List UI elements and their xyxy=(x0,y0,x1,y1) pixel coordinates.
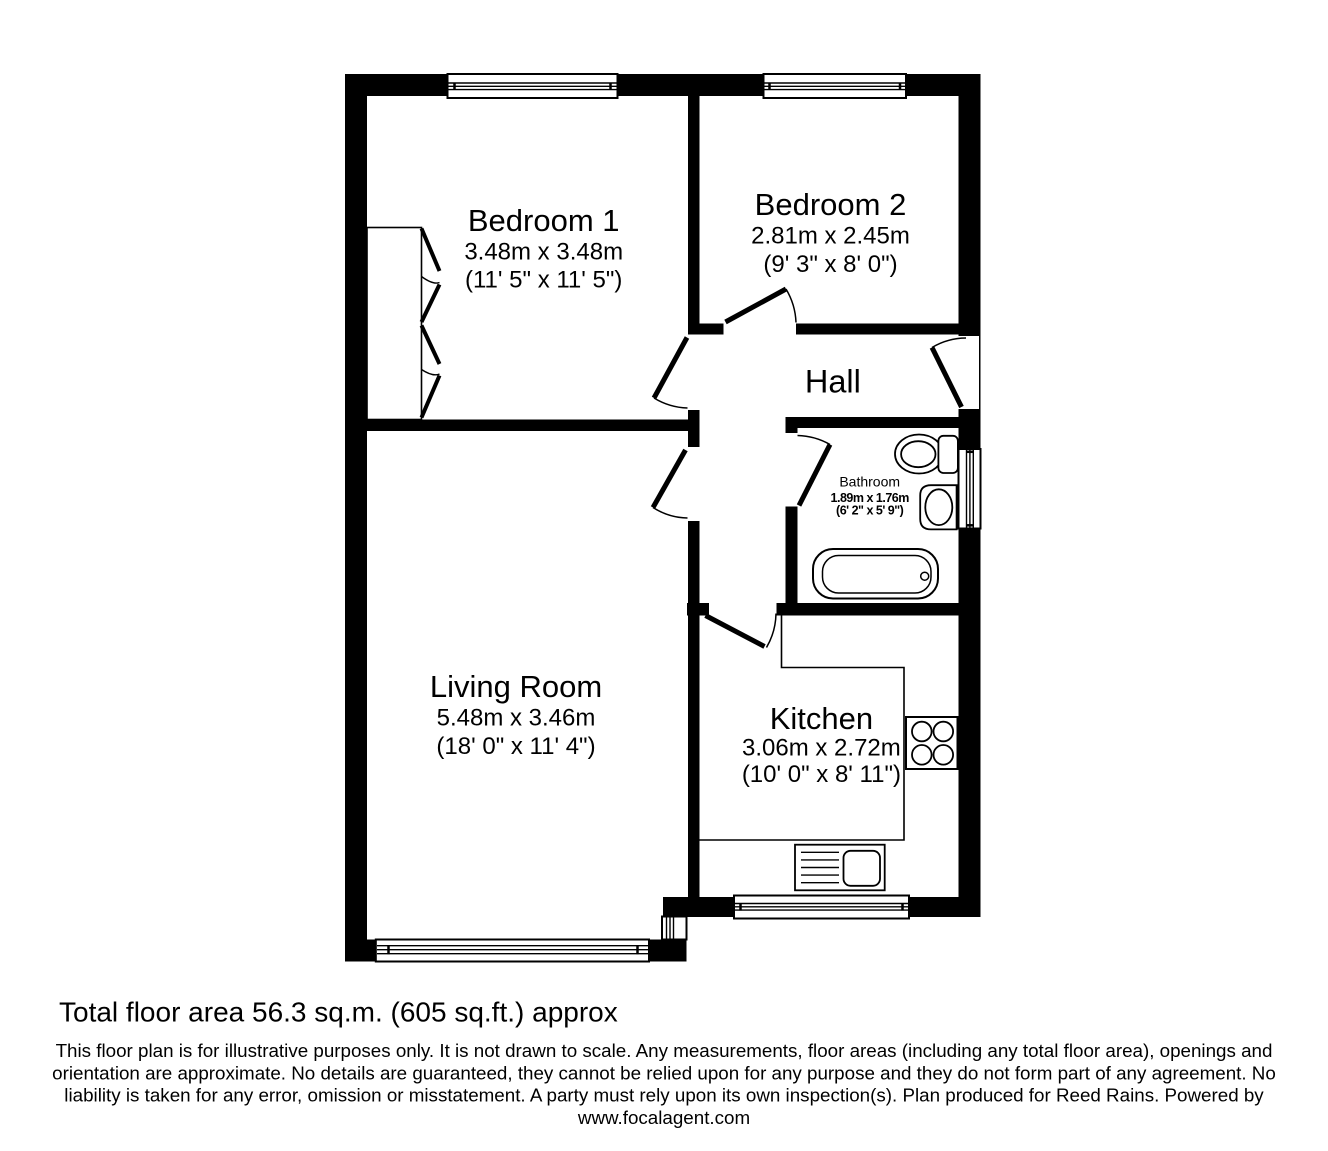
svg-text:(18' 0" x 11' 4"): (18' 0" x 11' 4") xyxy=(436,733,595,760)
svg-text:3.48m x 3.48m: 3.48m x 3.48m xyxy=(464,239,623,266)
svg-text:(10' 0" x 8' 11"): (10' 0" x 8' 11") xyxy=(742,761,901,788)
svg-text:(6' 2" x 5' 9"): (6' 2" x 5' 9") xyxy=(836,504,904,518)
svg-text:(11' 5" x 11' 5"): (11' 5" x 11' 5") xyxy=(465,267,622,294)
svg-text:www.focalagent.com: www.focalagent.com xyxy=(577,1107,750,1128)
svg-text:Total floor area 56.3 sq.m. (6: Total floor area 56.3 sq.m. (605 sq.ft.)… xyxy=(59,997,618,1028)
svg-text:(9' 3" x 8' 0"): (9' 3" x 8' 0") xyxy=(763,251,897,278)
svg-text:Bedroom 2: Bedroom 2 xyxy=(755,187,907,222)
svg-text:3.06m x 2.72m: 3.06m x 2.72m xyxy=(742,735,901,762)
svg-text:Bedroom 1: Bedroom 1 xyxy=(468,203,620,238)
svg-text:Hall: Hall xyxy=(805,364,861,400)
svg-text:This floor plan is for illustr: This floor plan is for illustrative purp… xyxy=(56,1040,1273,1061)
svg-text:Kitchen: Kitchen xyxy=(770,701,873,736)
svg-text:orientation are approximate. N: orientation are approximate. No details … xyxy=(52,1062,1276,1083)
svg-text:Bathroom: Bathroom xyxy=(839,474,900,490)
svg-text:2.81m x 2.45m: 2.81m x 2.45m xyxy=(751,222,910,249)
svg-text:Living Room: Living Room xyxy=(430,669,602,704)
svg-text:5.48m x 3.46m: 5.48m x 3.46m xyxy=(437,704,596,731)
svg-text:liability is taken for any err: liability is taken for any error, omissi… xyxy=(64,1085,1264,1106)
